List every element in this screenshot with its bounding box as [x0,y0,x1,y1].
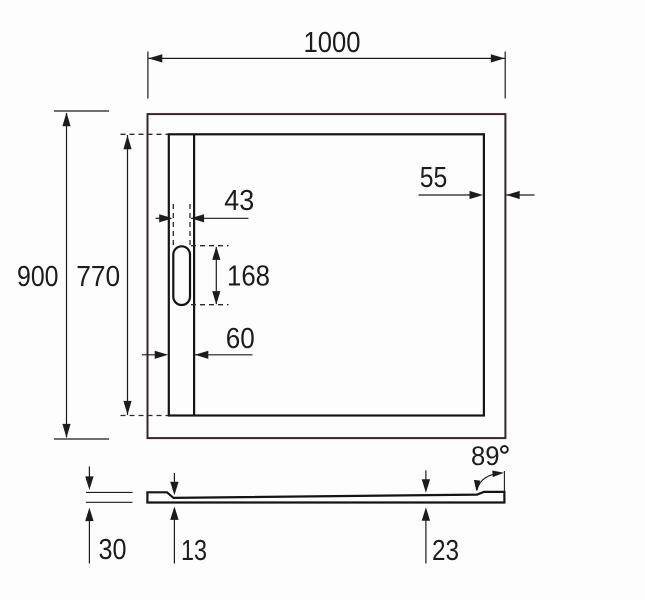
svg-text:55: 55 [420,162,448,194]
svg-text:168: 168 [227,261,270,293]
svg-text:23: 23 [432,535,459,567]
svg-text:89: 89 [471,441,500,471]
svg-text:43: 43 [224,185,254,217]
svg-text:1000: 1000 [304,27,361,59]
svg-text:770: 770 [76,261,120,293]
svg-text:30: 30 [99,534,127,566]
svg-text:60: 60 [226,323,255,355]
svg-text:900: 900 [17,261,59,293]
svg-text:13: 13 [181,535,207,567]
